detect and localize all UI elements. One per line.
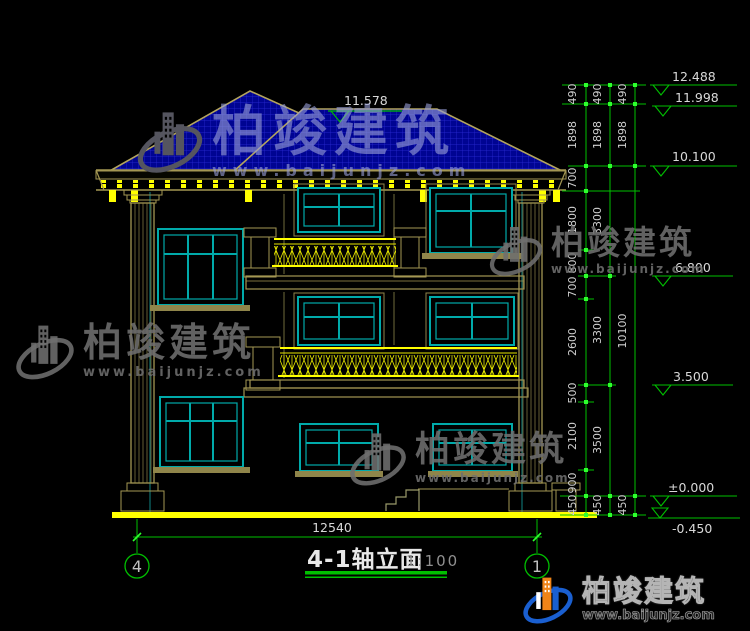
balcony3-railing xyxy=(272,239,398,266)
axis-label-left: 4 xyxy=(132,557,142,576)
elevation-label: -0.450 xyxy=(672,521,712,536)
elevation-markers: 12.488 11.998 10.100 6.800 3.500 ±0.000 … xyxy=(648,69,740,536)
dim-label: 1898 xyxy=(591,121,604,149)
footer-brand-text: 柏竣建筑 www.baijunjz.com xyxy=(582,577,715,623)
roof-peak-elevation-label: 11.578 xyxy=(344,93,388,108)
brand-logo-color-icon xyxy=(520,572,576,628)
footer-brand-logo: 柏竣建筑 www.baijunjz.com xyxy=(520,572,715,628)
hip-roof xyxy=(108,91,564,172)
elevation-labels: 12.488 11.998 10.100 6.800 3.500 ±0.000 … xyxy=(668,69,719,536)
window-1f-right xyxy=(433,424,512,471)
dim-label: 1898 xyxy=(566,121,579,149)
title-block: 4-1轴立面 1:100 xyxy=(305,546,459,578)
dim-label: 900 xyxy=(566,473,579,494)
dim-label: 3500 xyxy=(591,426,604,454)
right-column xyxy=(509,190,552,511)
balcony-level3 xyxy=(244,228,426,277)
dim-label: 2600 xyxy=(566,328,579,356)
dim-label: 800 xyxy=(566,253,579,274)
entry-steps xyxy=(386,490,419,511)
dim-label: 700 xyxy=(566,168,579,189)
window-1f-left xyxy=(160,397,243,467)
footer-brand-url: www.baijunjz.com xyxy=(582,608,715,623)
window-2f-center xyxy=(294,293,384,349)
footer-brand-name: 柏竣建筑 xyxy=(582,577,715,606)
balcony2-post xyxy=(246,337,280,390)
dim-label: 450 xyxy=(591,495,604,516)
dim-label: 2100 xyxy=(566,422,579,450)
cad-elevation-drawing: 11.578 xyxy=(0,0,750,631)
dimension-chains: 490 1898 700 1800 800 700 2600 500 2100 … xyxy=(560,83,646,517)
dim-label: 700 xyxy=(566,277,579,298)
balcony2-railing xyxy=(278,348,519,376)
ground-line xyxy=(112,512,597,518)
dim-label: 10100 xyxy=(616,314,629,349)
dim-label: 490 xyxy=(566,84,579,105)
dim-label: 490 xyxy=(616,84,629,105)
dim-label: 1800 xyxy=(566,206,579,234)
slab-band-level2 xyxy=(244,380,528,397)
elevation-label: 10.100 xyxy=(672,149,716,164)
bottom-width-dim-label: 12540 xyxy=(312,520,352,535)
window-1f-center xyxy=(300,424,378,471)
elevation-label: 6.800 xyxy=(675,260,711,275)
dim-label: 450 xyxy=(616,495,629,516)
dim-label: 490 xyxy=(591,84,604,105)
window-3f-left xyxy=(158,229,243,305)
dim-label: 1898 xyxy=(616,121,629,149)
dim-label: 450 xyxy=(566,495,579,516)
side-pedestal xyxy=(418,483,580,511)
dim-label: 500 xyxy=(566,383,579,404)
window-3f-center xyxy=(294,184,384,236)
elevation-label: 11.998 xyxy=(675,90,719,105)
elevation-label: ±0.000 xyxy=(668,480,714,495)
elevation-label: 12.488 xyxy=(672,69,716,84)
window-2f-right xyxy=(426,293,518,349)
dim-label: 3300 xyxy=(591,316,604,344)
window-3f-right xyxy=(426,184,516,257)
elevation-label: 3.500 xyxy=(673,369,709,384)
slab-band-level3 xyxy=(246,276,524,289)
dim-label: 3300 xyxy=(591,207,604,235)
drawing-scale: 1:100 xyxy=(406,552,459,570)
windows xyxy=(150,184,522,477)
drawing-svg: 11.578 xyxy=(0,0,750,631)
dimension-labels: 490 1898 700 1800 800 700 2600 500 2100 … xyxy=(566,84,629,516)
